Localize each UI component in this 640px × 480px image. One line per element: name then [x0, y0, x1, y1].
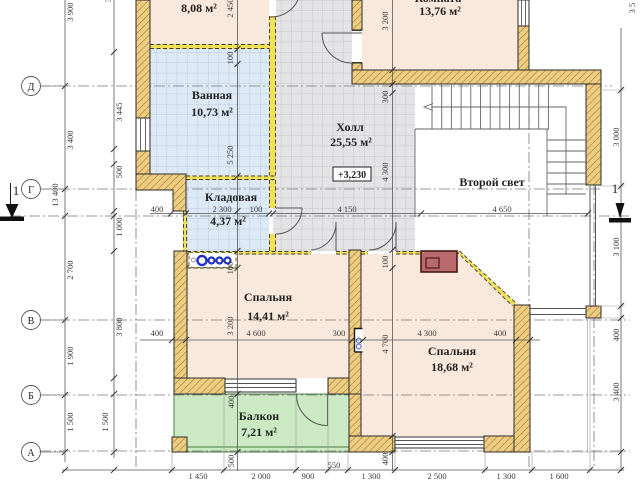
svg-text:2 450: 2 450 [225, 0, 235, 18]
svg-text:400: 400 [151, 204, 164, 214]
svg-text:400: 400 [611, 329, 621, 342]
svg-text:100: 100 [225, 52, 235, 65]
svg-text:1 450: 1 450 [188, 471, 207, 480]
svg-text:2 000: 2 000 [251, 471, 270, 480]
svg-text:10,73 м²: 10,73 м² [191, 105, 233, 119]
svg-text:300: 300 [380, 91, 390, 104]
svg-text:1 000: 1 000 [114, 217, 124, 236]
svg-text:1 900: 1 900 [65, 346, 75, 365]
svg-text:550: 550 [328, 460, 341, 470]
svg-text:3 800: 3 800 [114, 317, 124, 336]
svg-text:+3,230: +3,230 [338, 170, 366, 181]
svg-text:1: 1 [612, 181, 619, 196]
svg-text:14,41 м²: 14,41 м² [247, 309, 289, 323]
svg-text:3 445: 3 445 [114, 102, 124, 121]
svg-text:Холл: Холл [336, 120, 364, 134]
svg-text:1 500: 1 500 [100, 412, 110, 431]
svg-text:Спальня: Спальня [428, 344, 477, 358]
svg-text:7,21 м²: 7,21 м² [241, 425, 277, 439]
svg-text:Ванная: Ванная [192, 88, 233, 102]
svg-text:4 150: 4 150 [337, 204, 356, 214]
svg-text:100: 100 [225, 262, 235, 275]
svg-text:3 400: 3 400 [611, 382, 621, 401]
svg-text:1 500: 1 500 [65, 412, 75, 431]
svg-text:500: 500 [226, 455, 236, 468]
svg-text:400: 400 [380, 453, 390, 466]
svg-text:3 100: 3 100 [611, 237, 621, 256]
svg-text:4 300: 4 300 [417, 328, 436, 338]
svg-text:Д: Д [28, 82, 35, 93]
svg-text:Спальня: Спальня [244, 290, 293, 304]
svg-text:2 300: 2 300 [212, 204, 231, 214]
svg-text:18,68 м²: 18,68 м² [431, 360, 473, 374]
svg-text:2 500: 2 500 [427, 471, 446, 480]
svg-text:500: 500 [114, 166, 124, 179]
svg-text:4 700: 4 700 [380, 334, 390, 353]
svg-text:Б: Б [28, 391, 34, 402]
svg-text:Второй свет: Второй свет [459, 175, 524, 189]
svg-text:13 400: 13 400 [50, 183, 60, 206]
svg-text:100: 100 [380, 256, 390, 269]
svg-text:3 900: 3 900 [65, 2, 75, 21]
svg-text:Балкон: Балкон [239, 409, 280, 423]
svg-text:100: 100 [250, 204, 263, 214]
svg-text:400: 400 [151, 328, 164, 338]
svg-text:400: 400 [226, 396, 236, 409]
svg-text:2 700: 2 700 [65, 260, 75, 279]
svg-text:4 300: 4 300 [380, 162, 390, 181]
svg-text:3 900: 3 900 [103, 0, 113, 3]
svg-text:1 300: 1 300 [361, 471, 380, 480]
svg-text:В: В [28, 316, 35, 327]
svg-text:1 600: 1 600 [549, 471, 568, 480]
svg-text:Г: Г [28, 185, 34, 196]
svg-text:А: А [27, 448, 35, 459]
svg-text:3 5: 3 5 [627, 3, 637, 14]
svg-text:1 300: 1 300 [496, 471, 515, 480]
svg-text:13,76 м²: 13,76 м² [419, 4, 461, 18]
svg-text:1: 1 [13, 183, 20, 198]
svg-text:5 250: 5 250 [225, 145, 235, 164]
svg-text:4 600: 4 600 [246, 328, 265, 338]
svg-text:3 200: 3 200 [225, 316, 235, 335]
svg-text:300: 300 [333, 328, 346, 338]
svg-text:4,37 м²: 4,37 м² [210, 214, 246, 228]
svg-text:400: 400 [494, 328, 507, 338]
svg-text:3 000: 3 000 [611, 127, 621, 146]
svg-text:Комната: Комната [415, 0, 462, 5]
svg-text:3 400: 3 400 [65, 130, 75, 149]
svg-text:900: 900 [302, 471, 315, 480]
svg-text:25,55 м²: 25,55 м² [330, 135, 372, 149]
svg-text:8,08 м²: 8,08 м² [181, 1, 217, 15]
svg-text:3 200: 3 200 [380, 11, 390, 30]
svg-text:Кладовая: Кладовая [205, 190, 258, 204]
svg-text:4 650: 4 650 [492, 204, 511, 214]
